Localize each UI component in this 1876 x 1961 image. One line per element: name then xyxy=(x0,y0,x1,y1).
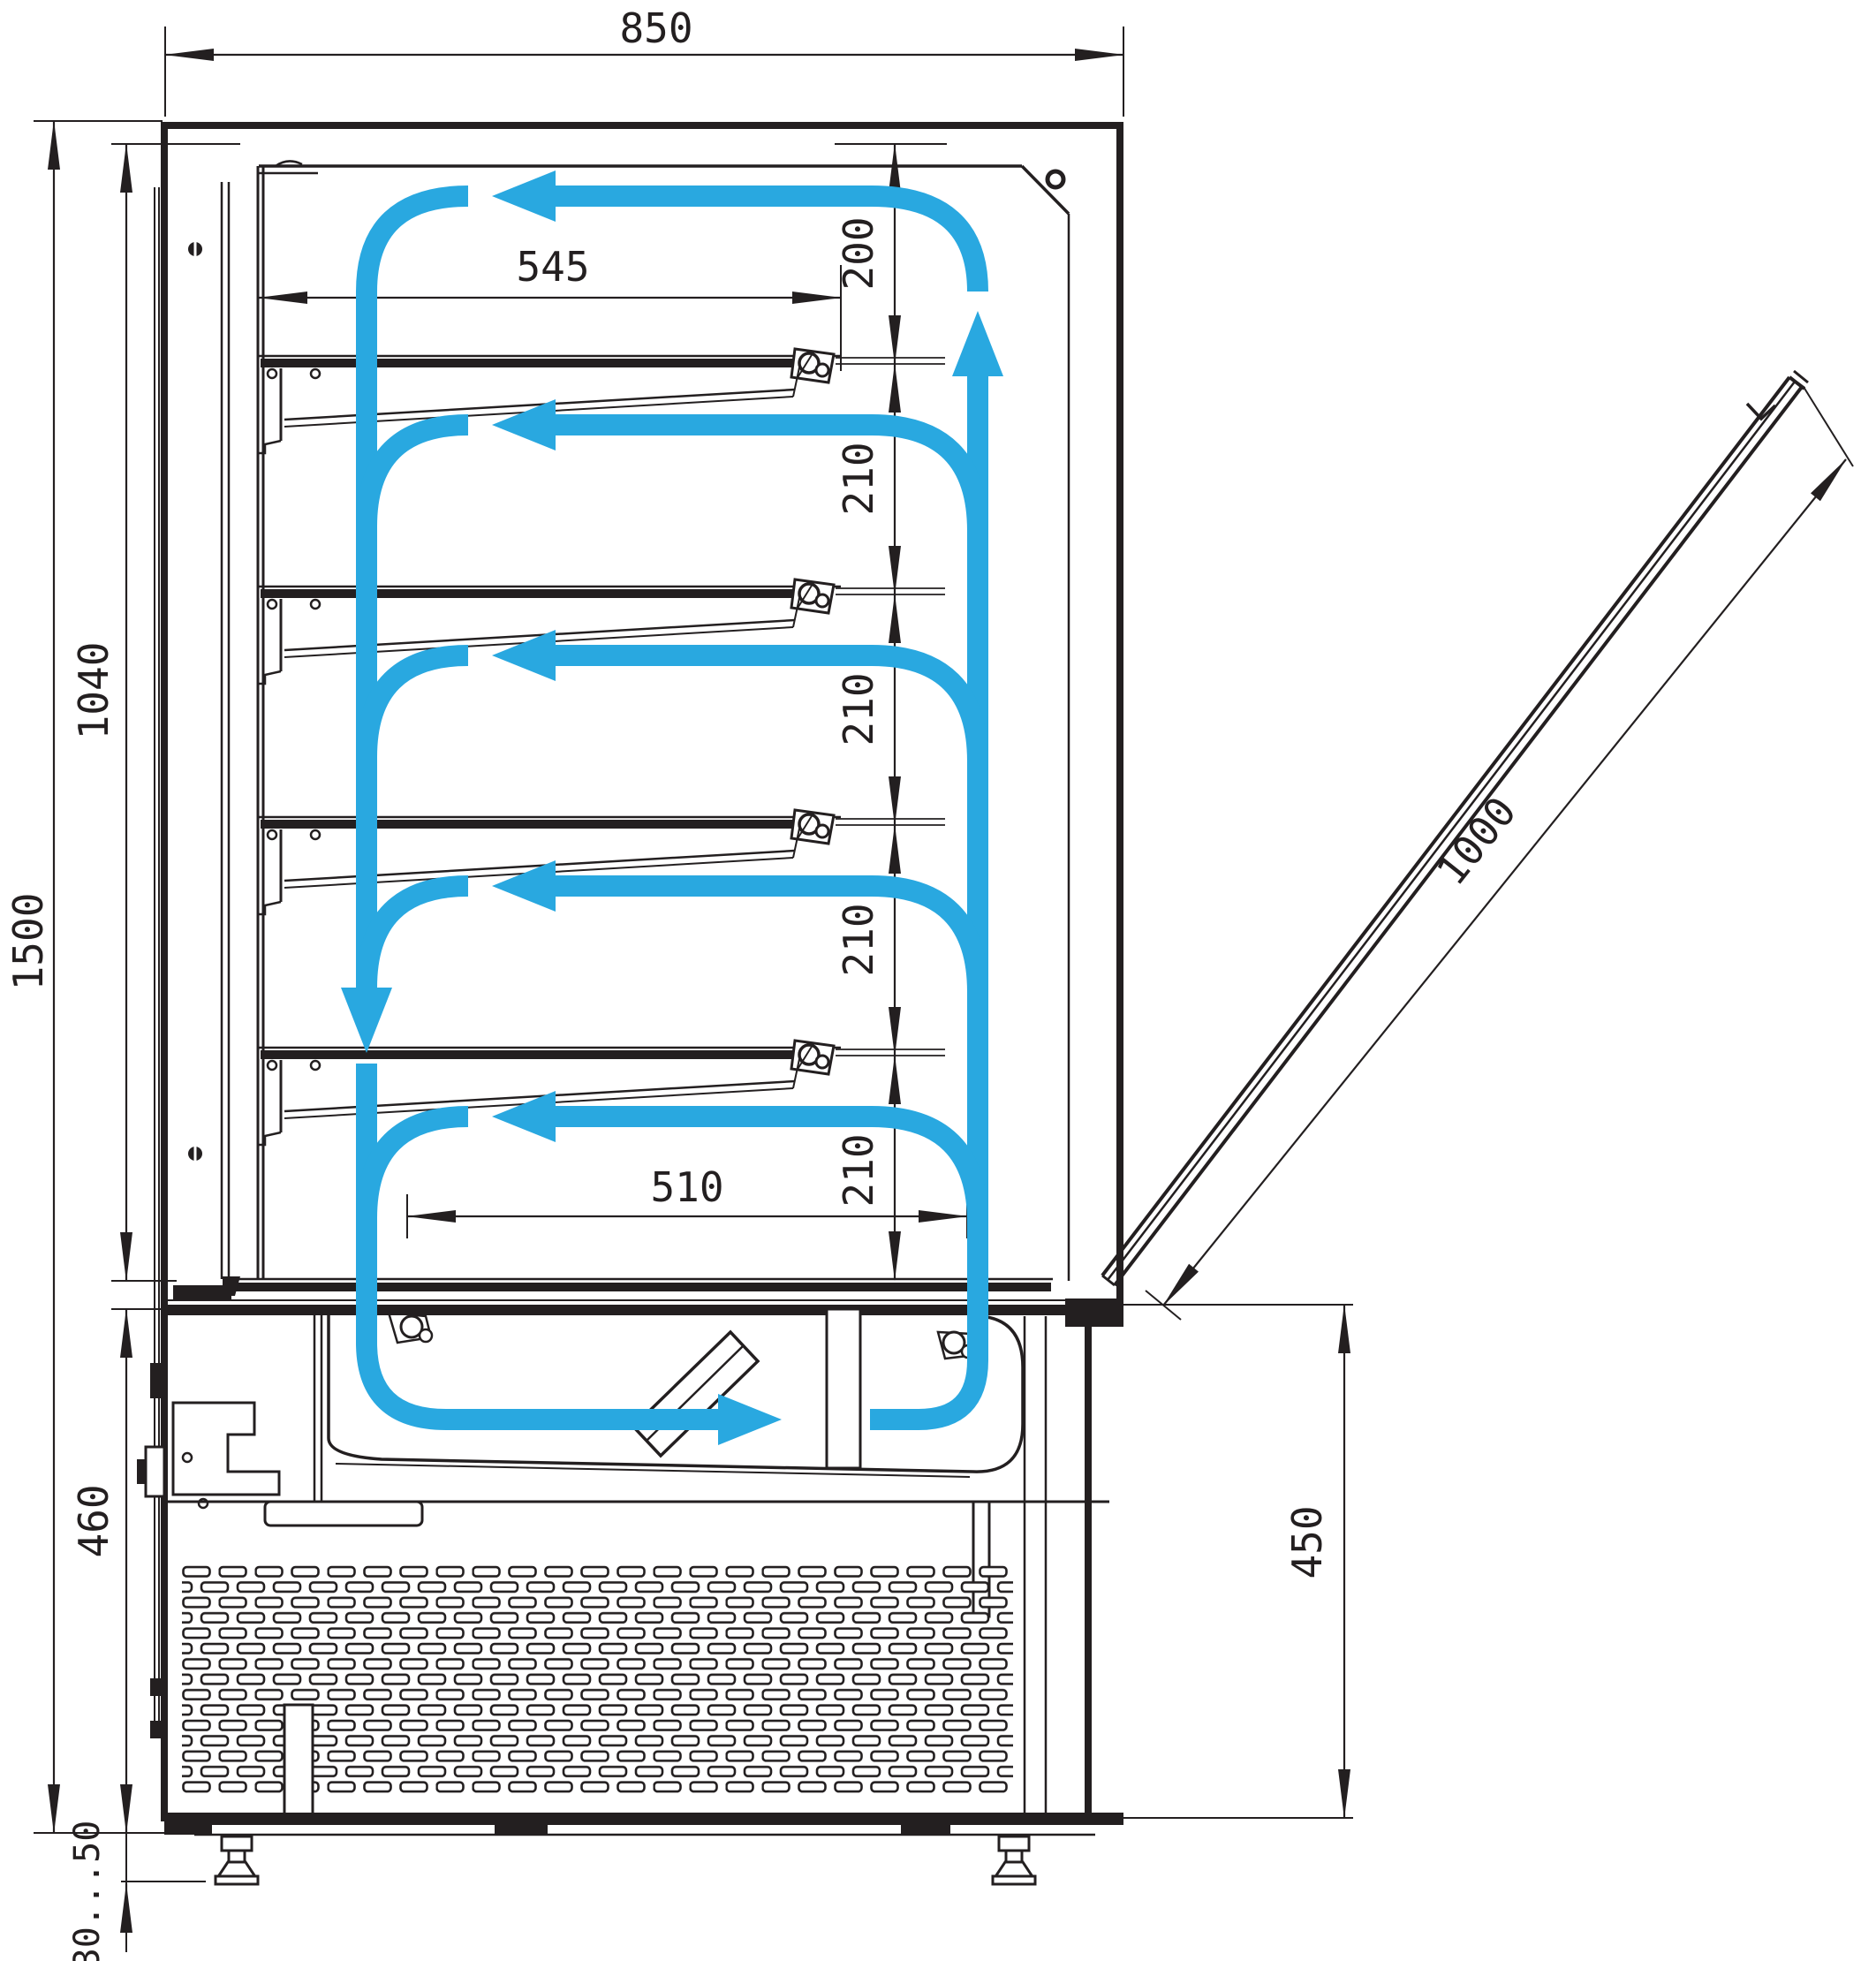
dim-label-base-height: 460 xyxy=(70,1484,117,1557)
dim-label-top-gap: 200 xyxy=(835,216,882,290)
technical-drawing-page: 850 1500 1040 460 30...50 545 510 200 21… xyxy=(0,0,1876,1961)
adjustable-foot-left xyxy=(216,1836,258,1884)
dim-label-shelf-gap-3: 210 xyxy=(835,903,882,976)
adjustable-foot-right xyxy=(993,1836,1035,1884)
base-front-wall xyxy=(1085,1325,1092,1813)
grille-post xyxy=(284,1705,313,1814)
back-wall-screw-icon xyxy=(188,1147,202,1161)
corner-screw-icon xyxy=(1048,171,1063,187)
dim-label-glass-length: 1000 xyxy=(1427,788,1525,894)
dim-line-1000 xyxy=(1163,459,1846,1306)
flow-arrow-down-icon xyxy=(341,988,392,1053)
back-wall-screw-icon xyxy=(188,242,202,256)
bottom-frame xyxy=(164,1813,1123,1825)
dim-label-top-shelf-depth: 545 xyxy=(516,243,589,291)
dim-label-display-height: 1040 xyxy=(70,642,117,740)
top-panel xyxy=(161,122,1123,129)
dim-label-shelf-gap-1: 210 xyxy=(835,442,882,515)
flow-arrow-left-icon xyxy=(492,170,556,222)
back-wall xyxy=(161,124,168,1821)
dim-label-overall-width: 850 xyxy=(619,4,692,52)
dim-label-overall-height: 1500 xyxy=(4,893,52,991)
fan-icon xyxy=(633,1332,758,1456)
display-deck xyxy=(223,1283,1051,1291)
dim-label-base-front-height: 450 xyxy=(1283,1505,1331,1579)
counter-top xyxy=(164,1305,1065,1315)
flow-arrow-right-icon xyxy=(718,1394,782,1445)
lamp-fixture-icon xyxy=(389,1313,432,1343)
basin-post xyxy=(827,1309,860,1468)
dim-label-shelf-gap-4: 210 xyxy=(835,1133,882,1207)
flow-arrow-up-icon xyxy=(952,311,1003,376)
dim-label-leg-range: 30...50 xyxy=(67,1821,108,1961)
dim-label-bottom-shelf-depth: 510 xyxy=(650,1163,723,1211)
dim-label-shelf-gap-2: 210 xyxy=(835,672,882,746)
front-sill xyxy=(1065,1298,1123,1327)
display-case-section-drawing: 850 1500 1040 460 30...50 545 510 200 21… xyxy=(0,0,1876,1961)
front-frame-upper xyxy=(1116,122,1123,1305)
glass-handle-icon xyxy=(1747,404,1775,419)
